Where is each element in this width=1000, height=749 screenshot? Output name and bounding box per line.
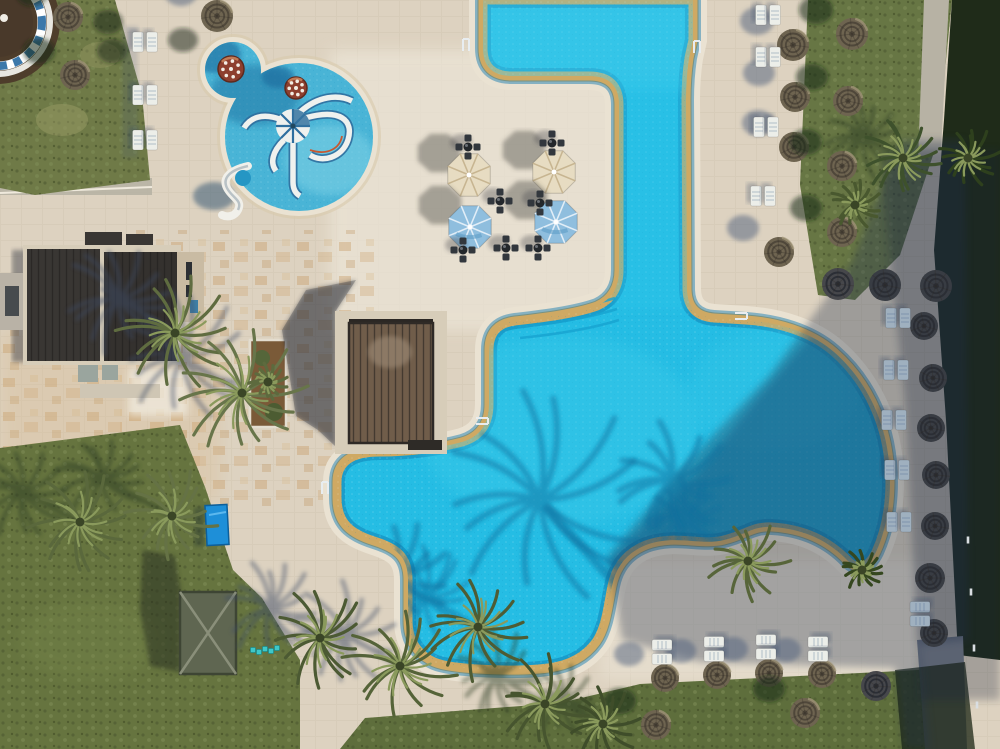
cafe-chair (549, 131, 556, 138)
thatch-umbrella (869, 269, 901, 301)
umbrella-seam (769, 673, 783, 674)
mushroom-dot (290, 92, 294, 96)
kids-chair (251, 648, 256, 653)
palm-crown-center (171, 329, 180, 338)
octopus-canopy-center (291, 124, 296, 129)
sun-lounger-pair (652, 636, 675, 665)
mushroom-dot (231, 59, 235, 63)
mushroom-dot (290, 81, 294, 85)
mushroom-dot (300, 83, 304, 87)
umbrella-shadow (753, 676, 785, 702)
cafe-chair (503, 236, 510, 243)
umbrella-shadow-on-grass (97, 39, 127, 63)
cafe-chair (546, 200, 553, 207)
sun-lounger-pair (756, 631, 779, 660)
cafe-table (496, 197, 505, 206)
cafe-chair (456, 144, 463, 151)
palm-crown-center (474, 623, 483, 632)
palm-crown-center (744, 557, 753, 566)
cafe-table (459, 246, 468, 255)
thatch-umbrella (922, 461, 950, 489)
pergola-bench (408, 440, 442, 450)
skylight-panel (102, 365, 118, 380)
palm-crown-center (599, 720, 608, 729)
umbrella-shadow-on-grass (168, 28, 198, 52)
parasol-pole-cap (552, 170, 557, 175)
cafe-chair (540, 140, 547, 147)
mushroom-dot (224, 74, 228, 78)
sun-lounger-pair (750, 114, 779, 137)
cafe-chair (460, 238, 467, 245)
sun-lounger-pair (704, 633, 727, 662)
mushroom-dot (295, 79, 299, 83)
screenshot-root: Aerial drone view of a resort swimming p… (0, 0, 1000, 749)
cafe-chair (506, 198, 513, 205)
cafe-chair (460, 256, 467, 263)
mushroom-dot (229, 67, 233, 71)
palm-crown-center (858, 566, 867, 575)
kids-chair (257, 650, 262, 655)
kids-chair (263, 647, 268, 652)
water-glint-channel (615, 80, 690, 310)
palm-crown-center (168, 512, 177, 521)
sun-lounger-pair (747, 183, 776, 206)
umbrella-shadow (790, 195, 822, 221)
resort-pool-aerial-photo (0, 0, 1000, 749)
cafe-chair (465, 135, 472, 142)
mushroom-fountain (285, 77, 307, 99)
cafe-chair (526, 245, 533, 252)
thatch-umbrella (861, 671, 891, 701)
rooftop-unit (5, 286, 19, 316)
cafe-chair (544, 245, 551, 252)
cafe-chair (469, 247, 476, 254)
sun-lounger-pair (808, 633, 831, 662)
parasol-pole-cap (468, 225, 473, 230)
mushroom-dot (231, 75, 235, 79)
umbrella-shadow-on-grass (93, 10, 123, 34)
thatch-umbrella (921, 512, 949, 540)
lawn-light-patch (20, 600, 160, 680)
umbrella-shadow (604, 688, 636, 714)
table-highlight (549, 140, 552, 143)
cafe-table (502, 244, 511, 253)
thatch-umbrella (917, 414, 945, 442)
table-highlight (465, 144, 468, 147)
thatch-umbrella (915, 563, 945, 593)
palm-crown-center (541, 700, 550, 709)
table-highlight (503, 245, 506, 248)
parasol-pole-cap (554, 220, 559, 225)
cafe-chair (465, 153, 472, 160)
pergola-roof-wear (368, 336, 412, 368)
umbrella-seam (656, 710, 657, 725)
palm-crown-center (316, 634, 325, 643)
cafe-table (534, 244, 543, 253)
sun-lounger-pair (752, 2, 781, 25)
mushroom-dot (237, 70, 241, 74)
cafe-chair (494, 245, 501, 252)
table-highlight (535, 245, 538, 248)
cafe-table (536, 199, 545, 208)
lawn-worn-patch (36, 104, 88, 136)
mushroom-dot (224, 61, 228, 65)
sun-lounger-pair (129, 29, 158, 52)
mushroom-dot (221, 68, 225, 72)
cafe-chair (488, 198, 495, 205)
cafe-chair (497, 207, 504, 214)
umbrella-shadow (727, 215, 759, 241)
table-highlight (460, 247, 463, 250)
palm-crown-center (899, 154, 908, 163)
palm-crown-center (396, 662, 405, 671)
umbrella-shadow (790, 129, 822, 155)
slide-splash-pool (235, 170, 251, 186)
cafe-chair (512, 245, 519, 252)
palm-crown-center (851, 201, 860, 210)
kiosk-finial (0, 14, 8, 22)
sun-lounger-pair (880, 357, 909, 380)
cafe-chair (535, 236, 542, 243)
thatch-umbrella (822, 268, 854, 300)
umbrella-shadow (23, 38, 55, 64)
thatch-umbrella (920, 270, 952, 302)
thatch-umbrella (910, 312, 938, 340)
sun-lounger-pair (129, 127, 158, 150)
sun-lounger-pair (878, 407, 907, 430)
skylight-panel (78, 365, 98, 382)
sun-lounger-pair (129, 82, 158, 105)
planter-shrub (254, 350, 270, 366)
cafe-table (548, 139, 557, 148)
table-highlight (497, 198, 500, 201)
sun-lounger-pair (752, 44, 781, 67)
fence-post (973, 645, 976, 652)
mushroom-dot (287, 87, 291, 91)
parasol-pole-cap (467, 173, 472, 178)
fence-post (967, 537, 970, 544)
table-highlight (537, 200, 540, 203)
fence-post (970, 589, 973, 596)
mushroom-dot (296, 93, 300, 97)
mushroom-dot (300, 89, 304, 93)
fence-post (976, 702, 979, 709)
kids-chair (269, 649, 274, 654)
cafe-chair (535, 254, 542, 261)
palm-crown-center (964, 154, 973, 163)
sun-lounger-pair (882, 305, 911, 328)
thatch-umbrella (919, 364, 947, 392)
palm-crown-center (264, 378, 273, 387)
cafe-chair (537, 191, 544, 198)
sun-lounger-pair (881, 457, 910, 480)
umbrella-shadow (614, 642, 644, 666)
cafe-chair (528, 200, 535, 207)
cafe-chair (451, 247, 458, 254)
mushroom-dot (294, 86, 298, 90)
palm-crown-center (238, 389, 247, 398)
umbrella-shadow (796, 64, 828, 90)
palm-crown-center (76, 518, 85, 527)
cafe-chair (474, 144, 481, 151)
sun-lounger-pair (883, 509, 912, 532)
mushroom-fountain (218, 56, 244, 82)
sun-lounger-pair (910, 598, 933, 627)
mushroom-dot (236, 63, 240, 67)
cafe-table (464, 143, 473, 152)
cafe-chair (558, 140, 565, 147)
roof-slat-texture (27, 249, 100, 361)
kids-chair (275, 646, 280, 651)
cafe-chair (503, 254, 510, 261)
cafe-chair (497, 189, 504, 196)
umbrella-seam (74, 60, 75, 75)
cafe-chair (537, 209, 544, 216)
cafe-chair (549, 149, 556, 156)
